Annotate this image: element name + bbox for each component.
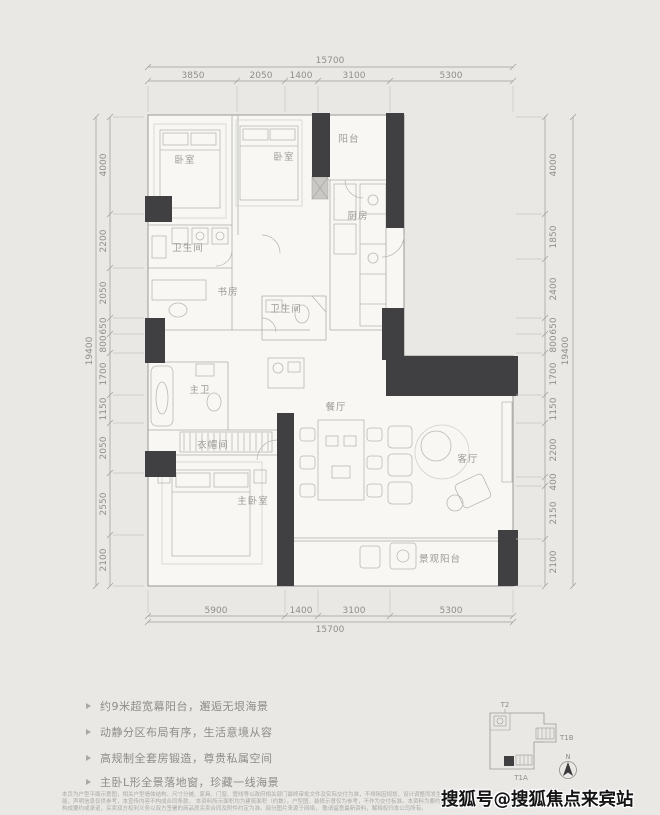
dim-right-seg-5: 800	[549, 335, 559, 352]
room-label-kitchen: 厨房	[347, 210, 368, 222]
selling-point-row: 动静分区布局有序，生活意境从容	[86, 724, 273, 740]
selling-point-row: 高规制全套房锻造，尊贵私属空间	[86, 750, 273, 766]
selling-point-row: 主卧L形全景落地窗，珍藏一线海景	[86, 774, 279, 790]
dim-right-seg-10: 2150	[549, 501, 559, 524]
selling-point-text: 高规制全套房锻造，尊贵私属空间	[100, 750, 273, 766]
dim-left-seg-3: 2050	[99, 281, 109, 304]
room-label-dining: 餐厅	[325, 401, 346, 413]
room-label-living: 客厅	[457, 453, 478, 465]
dim-left-seg-5: 800	[99, 335, 109, 352]
room-label-bedroom-2: 卧室	[273, 151, 294, 163]
dim-left-seg-4: 650	[99, 317, 109, 334]
key-plan-label-t1b: T1B	[559, 734, 574, 742]
plan-outline	[148, 115, 513, 586]
compass-icon: N	[560, 753, 577, 779]
dim-top-seg-2: 2050	[250, 71, 273, 81]
dim-left-total: 19400	[85, 336, 95, 365]
disclaimer-text: 本页为户型平面示意图，相关户型墙体结构、尺寸分摊、家具、门窗、管线等以政府相关部…	[62, 792, 464, 812]
dim-right-seg-1: 4000	[549, 153, 559, 176]
room-label-walk-in-closet: 衣帽间	[197, 439, 229, 451]
watermark-text: 搜狐号@搜狐焦点来宾站	[441, 786, 634, 811]
dim-left-seg-8: 2050	[99, 436, 109, 459]
dim-right-seg-4: 650	[549, 317, 559, 334]
key-plan-highlighted-unit	[504, 756, 514, 766]
dim-left-seg-2: 2200	[99, 229, 109, 252]
dim-right-seg-2: 1850	[549, 225, 559, 248]
key-plan-label-t1a: T1A	[513, 774, 528, 782]
floor-plan-page: 卧室 卧室 阳台 厨房 卫生间 书房 卫生间 主卫 衣帽间 主卧室 餐厅 客厅 …	[0, 0, 660, 815]
dim-left-seg-7: 1150	[99, 397, 109, 420]
floor-plan-drawing: 卧室 卧室 阳台 厨房 卫生间 书房 卫生间 主卫 衣帽间 主卧室 餐厅 客厅 …	[0, 0, 660, 815]
dim-left-seg-1: 4000	[99, 153, 109, 176]
room-label-bathroom-2: 卫生间	[270, 303, 302, 315]
room-label-master-bathroom: 主卫	[189, 384, 210, 396]
dim-bottom-total: 15700	[316, 625, 345, 635]
dim-bottom-seg-3: 3100	[343, 606, 366, 616]
key-plan-label-t2: T2	[500, 701, 510, 709]
dim-top-seg-1: 3850	[182, 71, 205, 81]
dim-left-seg-10: 2100	[99, 548, 109, 571]
dim-top-seg-5: 5300	[440, 71, 463, 81]
dim-bottom-seg-1: 5900	[205, 606, 228, 616]
bullet-triangle-icon	[86, 703, 91, 709]
selling-point-text: 主卧L形全景落地窗，珍藏一线海景	[100, 774, 279, 790]
selling-point-text: 动静分区布局有序，生活意境从容	[100, 724, 273, 740]
selling-point-text: 约9米超宽幕阳台，邂逅无垠海景	[100, 698, 269, 714]
dim-left-seg-6: 1700	[99, 362, 109, 385]
room-label-view-balcony: 景观阳台	[419, 553, 461, 565]
dim-right-seg-7: 1150	[549, 397, 559, 420]
disclaimer-line: 敬请留意最新资料，解释权归本公司所有。	[322, 806, 427, 812]
room-label-bathroom-1: 卫生间	[172, 242, 204, 254]
dim-right-seg-8: 2200	[549, 438, 559, 461]
room-label-study: 书房	[217, 286, 238, 298]
dim-right-total: 19400	[561, 336, 571, 365]
room-label-balcony-top: 阳台	[338, 133, 359, 145]
dim-right-seg-9: 400	[549, 473, 559, 490]
selling-point-row: 约9米超宽幕阳台，邂逅无垠海景	[86, 698, 269, 714]
key-plan	[490, 709, 556, 769]
dim-bottom-seg-4: 5300	[440, 606, 463, 616]
bullet-triangle-icon	[86, 729, 91, 735]
dim-top-total: 15700	[316, 56, 345, 66]
dim-top-seg-4: 3100	[343, 71, 366, 81]
bullet-triangle-icon	[86, 779, 91, 785]
bullet-triangle-icon	[86, 755, 91, 761]
room-label-bedroom-1: 卧室	[174, 154, 195, 166]
dim-right-seg-6: 1700	[549, 362, 559, 385]
shaft-hatch	[312, 177, 328, 199]
dim-right-seg-11: 2100	[549, 550, 559, 573]
dim-right-seg-3: 2400	[549, 277, 559, 300]
room-label-master-bedroom: 主卧室	[237, 495, 269, 507]
dim-left-seg-9: 2550	[99, 492, 109, 515]
compass-north-label: N	[565, 753, 570, 761]
dim-bottom-seg-2: 1400	[290, 606, 313, 616]
dim-top-seg-3: 1400	[290, 71, 313, 81]
